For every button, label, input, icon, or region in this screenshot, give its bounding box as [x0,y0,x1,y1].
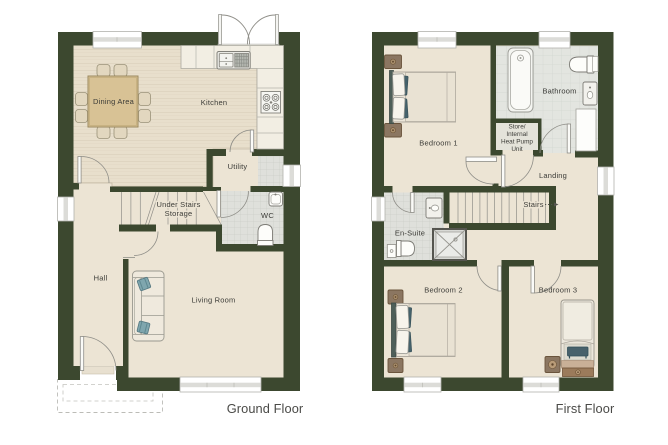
svg-text:Bathroom: Bathroom [542,87,576,96]
svg-text:Kitchen: Kitchen [201,98,227,107]
svg-text:Unit: Unit [511,146,523,153]
svg-text:Heat Pump: Heat Pump [501,139,533,146]
svg-text:Ground Floor: Ground Floor [227,401,304,416]
svg-text:Bedroom 3: Bedroom 3 [539,286,578,295]
svg-text:Landing: Landing [539,171,567,180]
svg-text:Hall: Hall [94,274,108,283]
svg-text:Dining Area: Dining Area [93,97,135,106]
svg-text:WC: WC [261,211,274,220]
svg-text:Storage: Storage [165,209,193,218]
svg-text:Living Room: Living Room [192,296,236,305]
svg-text:Utility: Utility [228,162,248,171]
svg-text:First Floor: First Floor [556,401,615,416]
svg-text:Bedroom 2: Bedroom 2 [424,286,463,295]
svg-text:Under Stairs: Under Stairs [156,200,200,209]
svg-text:Store/: Store/ [508,124,525,131]
svg-text:Stairs: Stairs [523,200,543,209]
svg-text:En-Suite: En-Suite [395,229,425,238]
svg-text:Bedroom 1: Bedroom 1 [419,139,458,148]
svg-text:Internal: Internal [506,131,527,138]
